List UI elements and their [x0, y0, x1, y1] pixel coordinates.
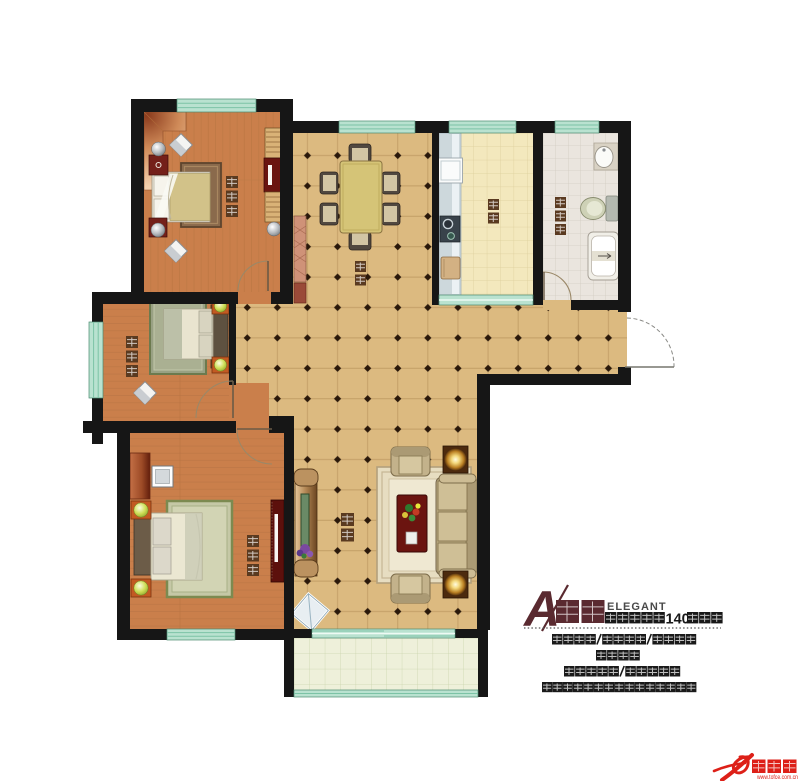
svg-text:140: 140	[666, 612, 690, 628]
svg-text:ELEGANT: ELEGANT	[607, 601, 667, 613]
svg-text:www.tofce.com.cn: www.tofce.com.cn	[756, 775, 798, 781]
